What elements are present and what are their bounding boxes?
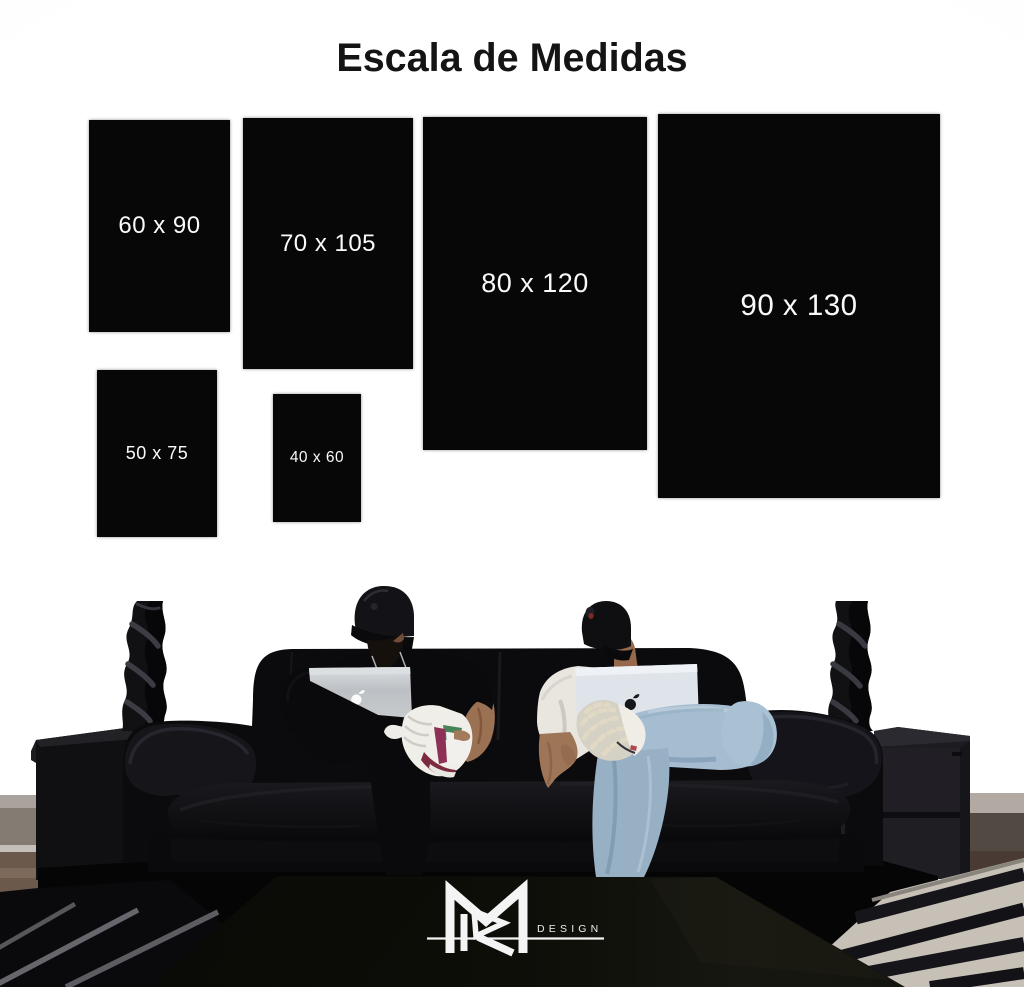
- svg-text:DESIGN: DESIGN: [537, 923, 602, 935]
